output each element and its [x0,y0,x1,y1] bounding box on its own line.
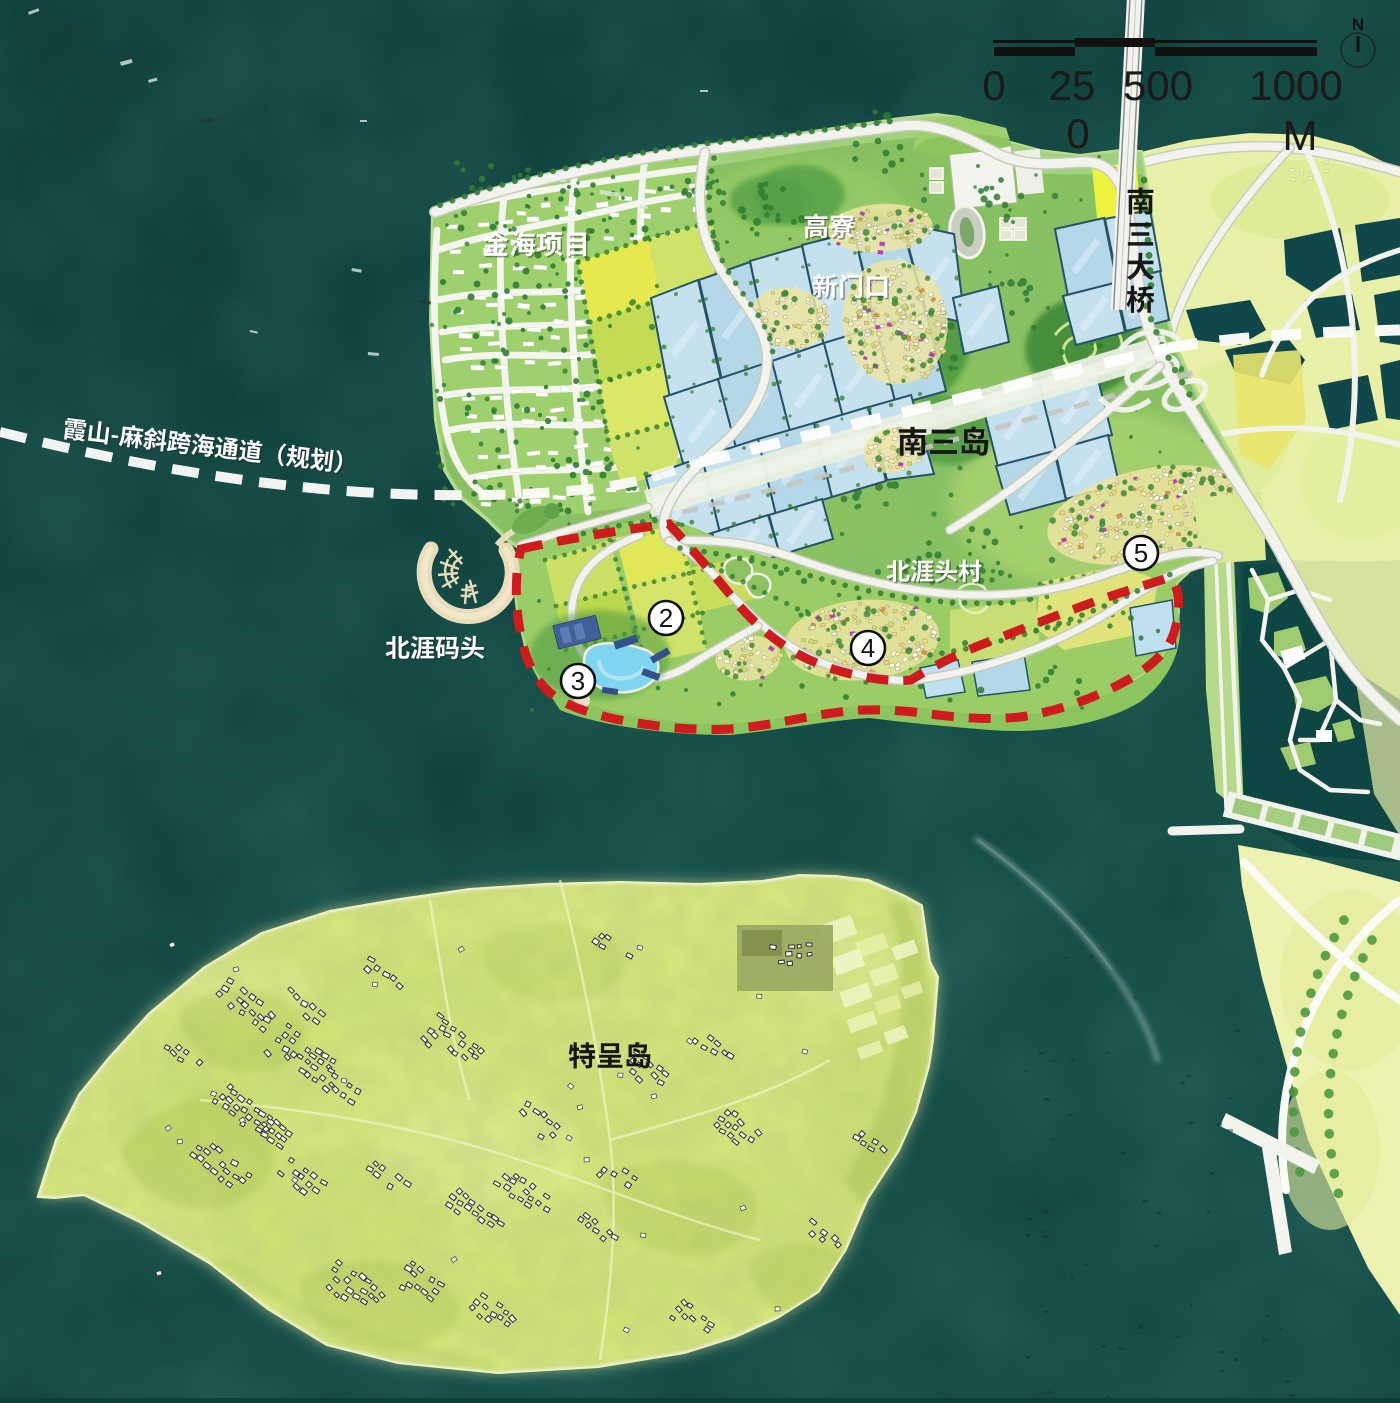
svg-text:0: 0 [982,62,1005,109]
svg-text:1000: 1000 [1249,62,1342,109]
svg-text:M: M [1283,112,1318,159]
svg-text:N: N [1352,15,1364,34]
svg-text:5: 5 [1134,538,1148,568]
svg-text:4: 4 [861,633,875,663]
svg-text:3: 3 [571,666,585,696]
svg-text:500: 500 [1123,62,1193,109]
svg-text:2: 2 [659,603,673,633]
svg-text:25: 25 [1049,62,1096,109]
svg-text:0: 0 [1066,110,1089,157]
